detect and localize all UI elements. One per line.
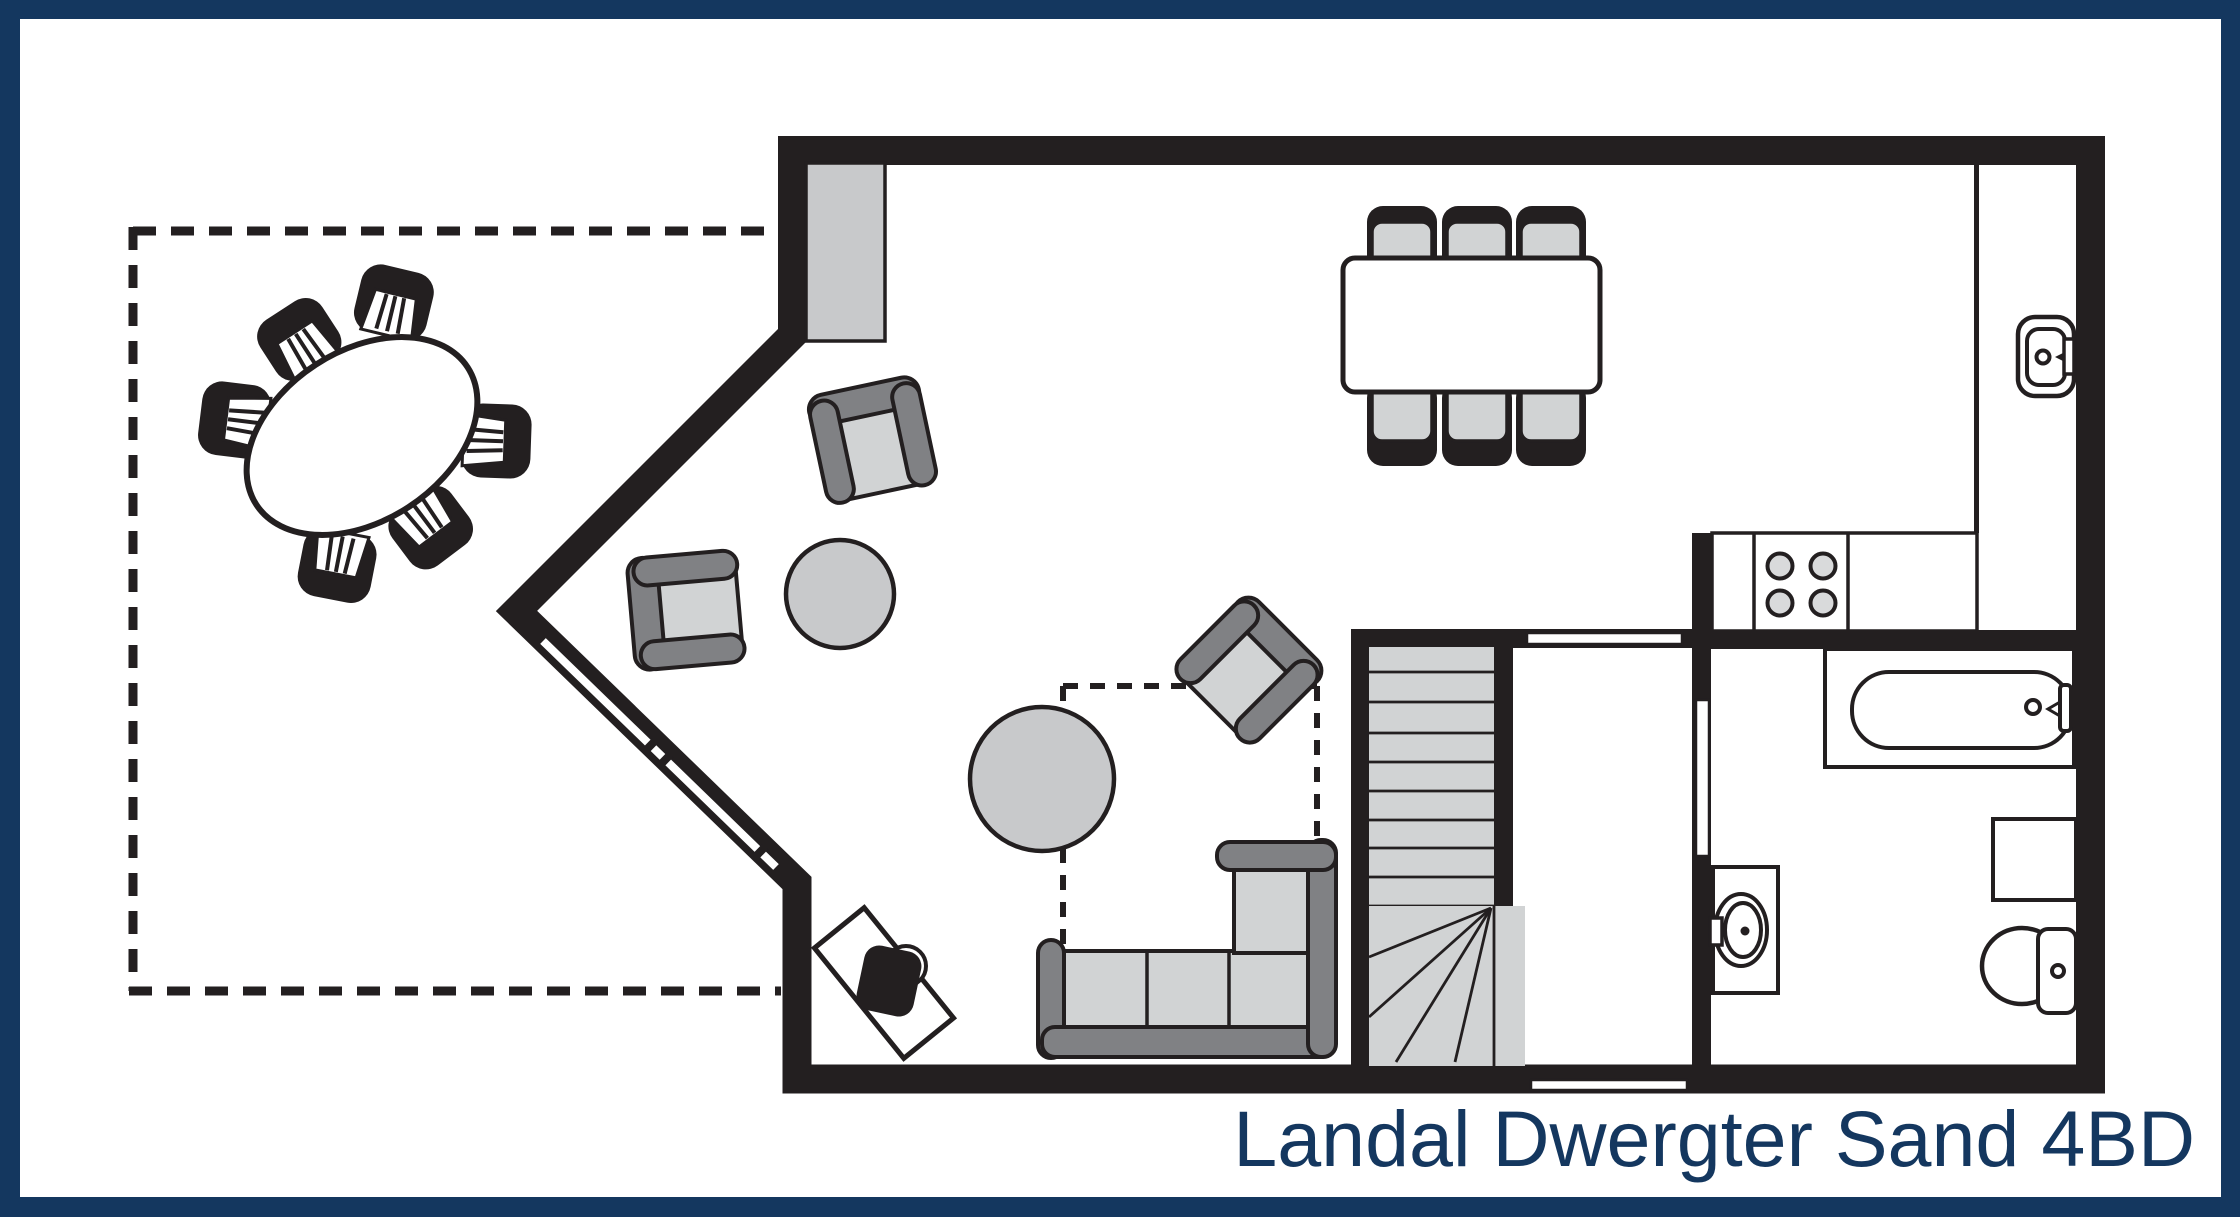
svg-text:Landal Dwergter Sand 4BD: Landal Dwergter Sand 4BD [1233, 1094, 2195, 1183]
